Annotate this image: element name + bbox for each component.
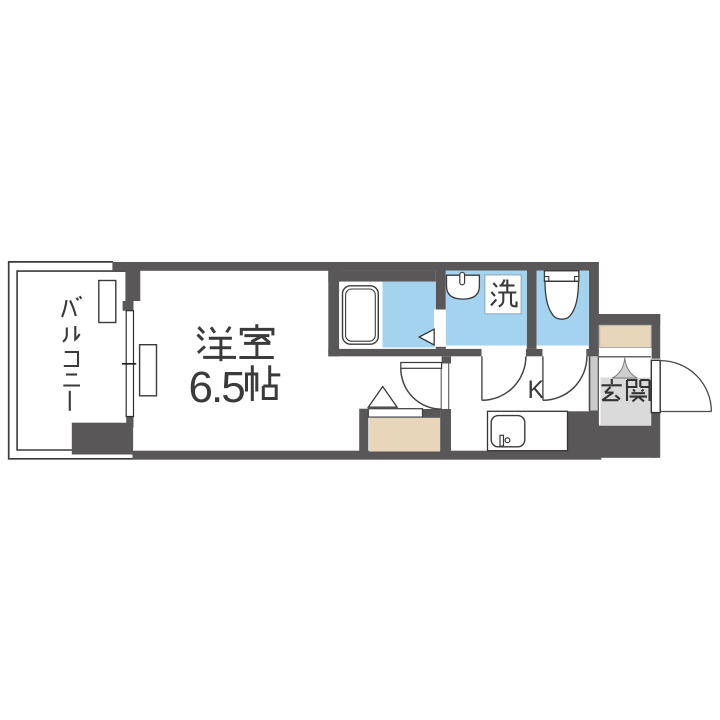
- svg-text:6.5: 6.5: [189, 363, 245, 412]
- svg-text:K: K: [528, 376, 545, 404]
